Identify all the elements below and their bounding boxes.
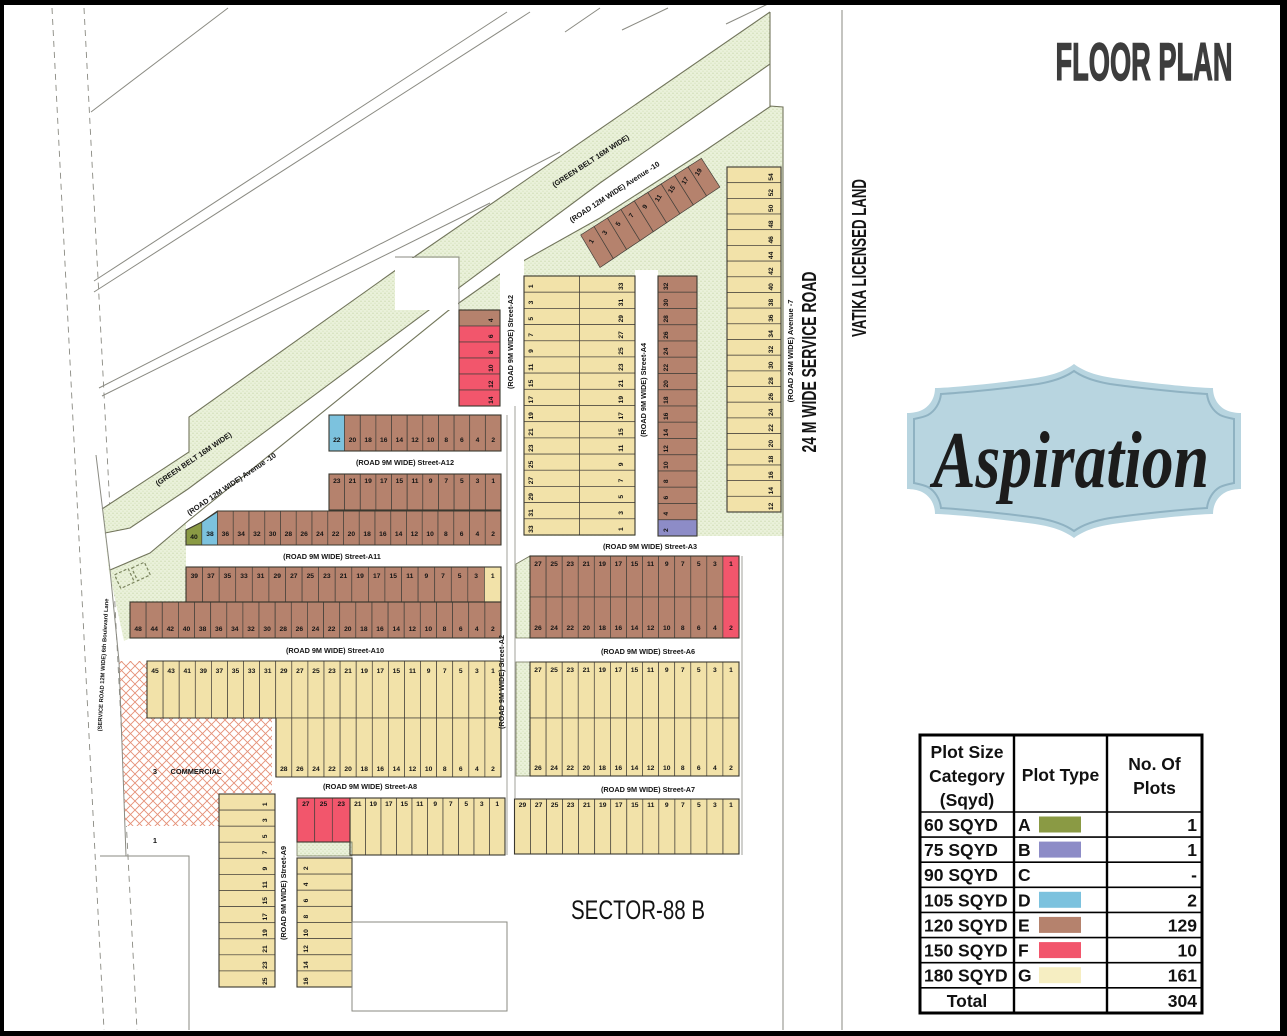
svg-text:10: 10 <box>425 766 433 773</box>
svg-text:15: 15 <box>631 802 639 809</box>
svg-text:5: 5 <box>464 801 468 808</box>
svg-text:19: 19 <box>599 802 607 809</box>
svg-text:50: 50 <box>768 204 775 212</box>
svg-text:(ROAD 9M WIDE) Street-A9: (ROAD 9M WIDE) Street-A9 <box>279 846 288 940</box>
svg-text:11: 11 <box>647 667 654 674</box>
svg-text:15: 15 <box>400 801 408 808</box>
svg-text:6: 6 <box>303 898 310 902</box>
svg-text:10: 10 <box>663 461 670 469</box>
svg-text:23: 23 <box>566 561 574 568</box>
svg-text:19: 19 <box>262 929 269 937</box>
svg-text:2: 2 <box>663 528 670 532</box>
svg-text:2: 2 <box>491 437 495 444</box>
svg-text:150 SQYD: 150 SQYD <box>924 941 1008 961</box>
svg-text:9: 9 <box>665 561 669 568</box>
svg-text:20: 20 <box>348 531 356 538</box>
svg-text:4: 4 <box>713 765 717 772</box>
svg-text:31: 31 <box>264 668 272 675</box>
svg-text:8: 8 <box>488 350 495 354</box>
svg-text:18: 18 <box>363 531 371 538</box>
svg-text:25: 25 <box>262 977 269 985</box>
svg-text:21: 21 <box>354 801 362 808</box>
svg-text:7: 7 <box>528 333 535 337</box>
svg-text:20: 20 <box>344 766 352 773</box>
svg-text:23: 23 <box>618 363 625 371</box>
svg-text:29: 29 <box>280 668 288 675</box>
svg-text:5: 5 <box>528 317 535 321</box>
svg-text:10: 10 <box>488 364 495 372</box>
svg-text:20: 20 <box>349 437 357 444</box>
svg-text:28: 28 <box>768 377 775 385</box>
svg-text:12: 12 <box>768 502 775 510</box>
svg-text:36: 36 <box>768 314 775 322</box>
svg-text:11: 11 <box>262 881 269 888</box>
svg-text:22: 22 <box>332 531 340 538</box>
svg-text:26: 26 <box>534 625 542 632</box>
svg-text:1: 1 <box>262 802 269 806</box>
svg-text:E: E <box>1018 915 1030 935</box>
svg-text:28: 28 <box>285 531 293 538</box>
svg-text:6: 6 <box>697 625 701 632</box>
svg-text:9: 9 <box>618 462 625 466</box>
svg-text:7: 7 <box>449 801 453 808</box>
svg-text:25: 25 <box>528 460 535 468</box>
svg-text:B: B <box>1018 840 1031 860</box>
svg-text:24: 24 <box>663 347 670 355</box>
svg-text:1: 1 <box>729 561 733 568</box>
svg-text:5: 5 <box>262 834 269 838</box>
svg-text:9: 9 <box>425 573 429 580</box>
svg-text:5: 5 <box>618 495 625 499</box>
svg-text:11: 11 <box>416 801 423 808</box>
svg-text:20: 20 <box>344 626 352 633</box>
svg-text:20: 20 <box>583 625 591 632</box>
svg-text:2: 2 <box>729 765 733 772</box>
svg-text:40: 40 <box>768 283 775 291</box>
svg-text:23: 23 <box>323 573 331 580</box>
svg-text:3: 3 <box>480 801 484 808</box>
svg-text:8: 8 <box>303 914 310 918</box>
svg-text:32: 32 <box>247 626 255 633</box>
svg-text:22: 22 <box>663 364 670 372</box>
svg-text:3: 3 <box>713 561 717 568</box>
svg-text:44: 44 <box>768 251 775 259</box>
svg-text:Plot Size: Plot Size <box>931 742 1004 762</box>
svg-text:19: 19 <box>364 478 372 485</box>
svg-text:7: 7 <box>681 561 685 568</box>
svg-text:F: F <box>1018 941 1029 961</box>
svg-text:(ROAD 9M WIDE) Street-A12: (ROAD 9M WIDE) Street-A12 <box>356 458 454 467</box>
svg-text:27: 27 <box>618 331 625 339</box>
svg-text:26: 26 <box>534 765 542 772</box>
svg-text:4: 4 <box>476 531 480 538</box>
svg-text:26: 26 <box>300 531 308 538</box>
svg-text:24: 24 <box>768 408 775 416</box>
svg-text:11: 11 <box>647 561 654 568</box>
svg-text:8: 8 <box>663 479 670 483</box>
svg-text:8: 8 <box>443 626 447 633</box>
svg-text:1: 1 <box>491 478 495 485</box>
svg-text:15: 15 <box>631 667 639 674</box>
svg-text:22: 22 <box>566 625 574 632</box>
svg-text:19: 19 <box>369 801 377 808</box>
svg-text:4: 4 <box>303 882 310 886</box>
svg-text:12: 12 <box>488 380 495 388</box>
svg-text:4: 4 <box>476 437 480 444</box>
svg-text:7: 7 <box>443 668 447 675</box>
svg-text:18: 18 <box>364 437 372 444</box>
svg-text:8: 8 <box>681 625 685 632</box>
svg-text:18: 18 <box>599 625 607 632</box>
svg-text:42: 42 <box>167 626 175 633</box>
svg-text:32: 32 <box>768 346 775 354</box>
svg-text:(Sqyd): (Sqyd) <box>940 790 994 810</box>
svg-text:SECTOR-88 B: SECTOR-88 B <box>571 895 705 925</box>
svg-text:28: 28 <box>280 766 288 773</box>
svg-text:10: 10 <box>663 765 671 772</box>
svg-text:5: 5 <box>458 573 462 580</box>
svg-text:12: 12 <box>303 945 310 953</box>
svg-text:(ROAD 9M WIDE) Street-A6: (ROAD 9M WIDE) Street-A6 <box>601 647 695 656</box>
svg-text:39: 39 <box>191 573 199 580</box>
svg-text:8: 8 <box>444 531 448 538</box>
svg-text:14: 14 <box>631 625 639 632</box>
svg-text:3: 3 <box>153 767 157 776</box>
svg-text:60 SQYD: 60 SQYD <box>924 815 998 835</box>
svg-text:11: 11 <box>409 668 416 675</box>
svg-text:26: 26 <box>663 331 670 339</box>
svg-text:3: 3 <box>713 802 717 809</box>
svg-text:20: 20 <box>768 440 775 448</box>
svg-text:16: 16 <box>303 977 310 985</box>
svg-text:23: 23 <box>333 478 341 485</box>
svg-text:18: 18 <box>663 396 670 404</box>
svg-text:15: 15 <box>393 668 401 675</box>
svg-text:7: 7 <box>618 478 625 482</box>
svg-text:26: 26 <box>296 766 304 773</box>
svg-text:40: 40 <box>183 626 191 633</box>
svg-text:7: 7 <box>441 573 445 580</box>
svg-text:1: 1 <box>618 527 625 531</box>
svg-text:1: 1 <box>153 836 157 845</box>
svg-text:25: 25 <box>550 561 558 568</box>
svg-text:(ROAD 24M WIDE) Avenue -7: (ROAD 24M WIDE) Avenue -7 <box>786 300 795 403</box>
svg-text:46: 46 <box>768 236 775 244</box>
svg-text:17: 17 <box>373 573 381 580</box>
svg-text:21: 21 <box>583 802 591 809</box>
svg-text:17: 17 <box>385 801 393 808</box>
svg-text:6: 6 <box>460 531 464 538</box>
svg-text:26: 26 <box>768 393 775 401</box>
svg-text:8: 8 <box>443 766 447 773</box>
svg-text:16: 16 <box>768 471 775 479</box>
svg-text:5: 5 <box>459 668 463 675</box>
svg-text:9: 9 <box>262 866 269 870</box>
svg-text:3: 3 <box>618 511 625 515</box>
svg-text:2: 2 <box>491 766 495 773</box>
svg-text:19: 19 <box>599 667 607 674</box>
svg-text:4: 4 <box>663 512 670 516</box>
svg-text:44: 44 <box>150 626 158 633</box>
svg-text:14: 14 <box>396 437 404 444</box>
svg-text:30: 30 <box>263 626 271 633</box>
svg-text:17: 17 <box>615 667 623 674</box>
svg-text:16: 16 <box>380 437 388 444</box>
svg-text:27: 27 <box>528 477 535 485</box>
svg-text:2: 2 <box>729 625 733 632</box>
svg-text:8: 8 <box>444 437 448 444</box>
svg-text:24: 24 <box>550 765 558 772</box>
svg-text:15: 15 <box>618 428 625 436</box>
svg-text:16: 16 <box>379 531 387 538</box>
svg-text:32: 32 <box>253 531 261 538</box>
svg-text:3: 3 <box>476 478 480 485</box>
svg-text:11: 11 <box>618 444 625 451</box>
svg-text:31: 31 <box>528 509 535 517</box>
svg-text:12: 12 <box>663 445 670 453</box>
svg-text:9: 9 <box>528 349 535 353</box>
svg-text:15: 15 <box>528 379 535 387</box>
svg-text:24: 24 <box>316 531 324 538</box>
svg-text:10: 10 <box>427 437 435 444</box>
svg-text:4: 4 <box>488 318 495 322</box>
svg-text:304: 304 <box>1168 991 1197 1011</box>
svg-text:38: 38 <box>768 299 775 307</box>
svg-text:2: 2 <box>1187 890 1197 910</box>
svg-text:Plot Type: Plot Type <box>1022 765 1100 785</box>
svg-text:12: 12 <box>647 625 655 632</box>
svg-text:11: 11 <box>647 802 654 809</box>
svg-text:14: 14 <box>631 765 639 772</box>
svg-text:25: 25 <box>551 802 559 809</box>
svg-text:10: 10 <box>1178 941 1198 961</box>
svg-text:12: 12 <box>411 531 419 538</box>
svg-text:31: 31 <box>257 573 265 580</box>
svg-text:9: 9 <box>433 801 437 808</box>
svg-text:A: A <box>1018 815 1031 835</box>
svg-text:23: 23 <box>262 961 269 969</box>
svg-text:33: 33 <box>618 282 625 290</box>
svg-text:38: 38 <box>199 626 207 633</box>
svg-text:21: 21 <box>583 561 591 568</box>
svg-text:10: 10 <box>663 625 671 632</box>
svg-text:14: 14 <box>395 531 403 538</box>
svg-text:25: 25 <box>307 573 315 580</box>
svg-text:17: 17 <box>528 396 535 404</box>
svg-text:11: 11 <box>528 363 535 370</box>
svg-text:29: 29 <box>519 802 527 809</box>
svg-text:9: 9 <box>665 802 669 809</box>
svg-text:16: 16 <box>377 766 385 773</box>
svg-text:180 SQYD: 180 SQYD <box>924 966 1008 986</box>
svg-text:7: 7 <box>262 850 269 854</box>
svg-text:39: 39 <box>200 668 208 675</box>
svg-text:23: 23 <box>337 801 345 808</box>
svg-text:23: 23 <box>528 444 535 452</box>
svg-text:24: 24 <box>550 625 558 632</box>
svg-text:11: 11 <box>406 573 413 580</box>
svg-text:12: 12 <box>411 437 419 444</box>
svg-text:No. Of: No. Of <box>1128 754 1181 774</box>
svg-text:32: 32 <box>663 282 670 290</box>
svg-text:105 SQYD: 105 SQYD <box>924 890 1008 910</box>
svg-text:19: 19 <box>599 561 607 568</box>
svg-text:(ROAD 9M WIDE) Street-A2: (ROAD 9M WIDE) Street-A2 <box>506 295 515 389</box>
svg-text:29: 29 <box>618 315 625 323</box>
svg-text:17: 17 <box>262 913 269 921</box>
svg-text:8: 8 <box>681 765 685 772</box>
svg-text:5: 5 <box>697 667 701 674</box>
svg-text:6: 6 <box>459 626 463 633</box>
svg-text:3: 3 <box>474 573 478 580</box>
svg-text:52: 52 <box>768 189 775 197</box>
svg-text:38: 38 <box>206 531 214 538</box>
svg-text:24: 24 <box>312 766 320 773</box>
svg-text:30: 30 <box>663 299 670 307</box>
svg-text:23: 23 <box>328 668 336 675</box>
svg-text:3: 3 <box>713 667 717 674</box>
svg-text:21: 21 <box>349 478 357 485</box>
svg-text:18: 18 <box>599 765 607 772</box>
svg-text:16: 16 <box>663 412 670 420</box>
svg-text:4: 4 <box>713 625 717 632</box>
svg-text:22: 22 <box>328 766 336 773</box>
svg-text:14: 14 <box>303 961 310 969</box>
svg-text:D: D <box>1018 890 1031 910</box>
svg-text:1: 1 <box>1187 815 1197 835</box>
svg-text:22: 22 <box>768 424 775 432</box>
svg-text:7: 7 <box>681 802 685 809</box>
svg-text:23: 23 <box>567 802 575 809</box>
svg-text:36: 36 <box>215 626 223 633</box>
svg-text:Total: Total <box>947 991 988 1011</box>
svg-text:27: 27 <box>290 573 298 580</box>
svg-text:18: 18 <box>360 626 368 633</box>
svg-text:35: 35 <box>232 668 240 675</box>
svg-text:4: 4 <box>475 766 479 773</box>
svg-text:9: 9 <box>427 668 431 675</box>
svg-text:(ROAD 9M WIDE) Street-A11: (ROAD 9M WIDE) Street-A11 <box>283 552 381 561</box>
svg-text:17: 17 <box>377 668 385 675</box>
svg-text:14: 14 <box>768 487 775 495</box>
svg-text:(ROAD 9M WIDE) Street-A4: (ROAD 9M WIDE) Street-A4 <box>639 342 648 437</box>
svg-text:9: 9 <box>429 478 433 485</box>
svg-text:21: 21 <box>344 668 352 675</box>
svg-text:25: 25 <box>618 347 625 355</box>
svg-text:6: 6 <box>697 765 701 772</box>
svg-text:14: 14 <box>663 429 670 437</box>
svg-text:21: 21 <box>340 573 348 580</box>
svg-text:30: 30 <box>768 361 775 369</box>
svg-text:15: 15 <box>389 573 397 580</box>
svg-text:25: 25 <box>312 668 320 675</box>
svg-text:COMMERCIAL: COMMERCIAL <box>171 767 222 776</box>
svg-text:11: 11 <box>411 478 418 485</box>
svg-text:41: 41 <box>183 668 191 675</box>
svg-text:14: 14 <box>393 766 401 773</box>
svg-text:17: 17 <box>618 412 625 420</box>
svg-text:G: G <box>1018 966 1032 986</box>
svg-text:1: 1 <box>491 573 495 580</box>
svg-text:1: 1 <box>729 667 733 674</box>
svg-text:19: 19 <box>618 396 625 404</box>
svg-text:Plots: Plots <box>1133 778 1176 798</box>
svg-text:4: 4 <box>475 626 479 633</box>
svg-text:15: 15 <box>631 561 639 568</box>
svg-text:6: 6 <box>460 437 464 444</box>
svg-text:28: 28 <box>279 626 287 633</box>
svg-text:40: 40 <box>190 534 198 541</box>
svg-text:21: 21 <box>618 379 625 387</box>
svg-text:43: 43 <box>167 668 175 675</box>
svg-text:20: 20 <box>583 765 591 772</box>
svg-text:7: 7 <box>681 667 685 674</box>
svg-text:16: 16 <box>615 625 623 632</box>
svg-text:120 SQYD: 120 SQYD <box>924 915 1008 935</box>
svg-text:75 SQYD: 75 SQYD <box>924 840 998 860</box>
svg-text:12: 12 <box>647 765 655 772</box>
svg-text:24 M WIDE SERVICE ROAD: 24 M WIDE SERVICE ROAD <box>799 272 821 453</box>
svg-text:6: 6 <box>459 766 463 773</box>
svg-text:1: 1 <box>495 801 499 808</box>
svg-text:5: 5 <box>697 561 701 568</box>
svg-text:23: 23 <box>566 667 574 674</box>
svg-text:14: 14 <box>392 626 400 633</box>
svg-text:19: 19 <box>356 573 364 580</box>
svg-text:1: 1 <box>491 668 495 675</box>
svg-text:6: 6 <box>488 334 495 338</box>
svg-text:48: 48 <box>134 626 142 633</box>
svg-text:19: 19 <box>528 412 535 420</box>
svg-text:42: 42 <box>768 267 775 275</box>
svg-text:29: 29 <box>273 573 281 580</box>
svg-text:21: 21 <box>528 428 535 436</box>
svg-text:3: 3 <box>475 668 479 675</box>
svg-text:129: 129 <box>1168 915 1197 935</box>
svg-text:10: 10 <box>425 626 433 633</box>
svg-text:FLOOR PLAN: FLOOR PLAN <box>1056 33 1233 92</box>
svg-text:33: 33 <box>248 668 256 675</box>
svg-text:5: 5 <box>697 802 701 809</box>
svg-text:17: 17 <box>380 478 388 485</box>
svg-text:21: 21 <box>262 945 269 953</box>
svg-text:(ROAD 9M WIDE) Street-A10: (ROAD 9M WIDE) Street-A10 <box>286 646 384 655</box>
svg-text:27: 27 <box>302 801 310 808</box>
svg-text:25: 25 <box>550 667 558 674</box>
svg-text:37: 37 <box>216 668 224 675</box>
svg-text:17: 17 <box>615 802 623 809</box>
svg-text:35: 35 <box>224 573 232 580</box>
svg-text:2: 2 <box>491 626 495 633</box>
svg-text:16: 16 <box>615 765 623 772</box>
svg-text:-: - <box>1191 865 1197 885</box>
svg-text:24: 24 <box>312 626 320 633</box>
svg-text:29: 29 <box>528 493 535 501</box>
svg-text:18: 18 <box>768 455 775 463</box>
svg-text:33: 33 <box>528 525 535 533</box>
svg-text:27: 27 <box>534 667 542 674</box>
svg-text:(ROAD 9M WIDE) Street-A8: (ROAD 9M WIDE) Street-A8 <box>323 782 417 791</box>
svg-text:161: 161 <box>1168 966 1197 986</box>
svg-text:10: 10 <box>426 531 434 538</box>
svg-text:36: 36 <box>222 531 230 538</box>
svg-text:10: 10 <box>303 929 310 937</box>
svg-text:C: C <box>1018 865 1031 885</box>
svg-text:15: 15 <box>396 478 404 485</box>
svg-text:Aspiration: Aspiration <box>929 417 1209 505</box>
svg-text:19: 19 <box>360 668 368 675</box>
svg-text:9: 9 <box>665 667 669 674</box>
